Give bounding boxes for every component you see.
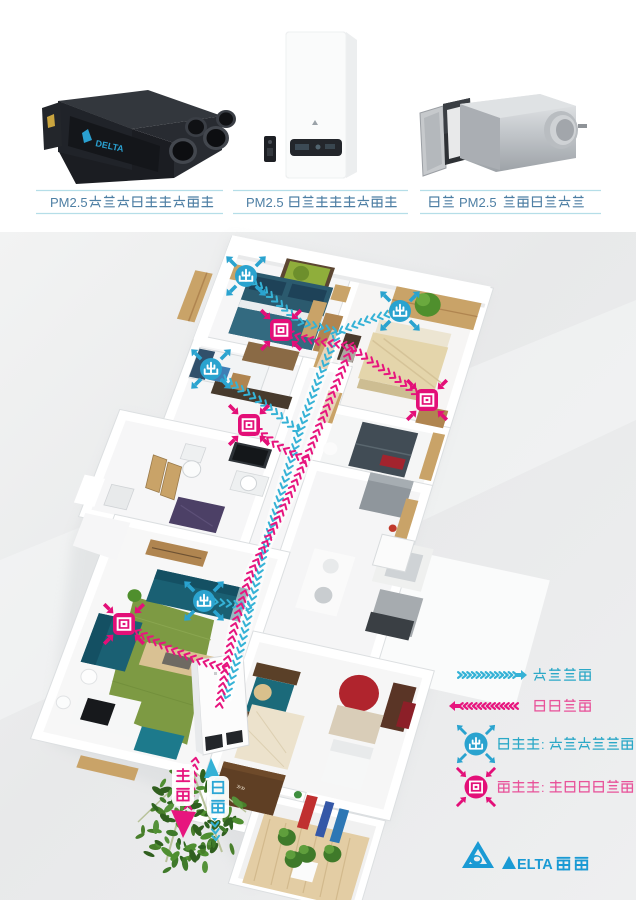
- svg-text::: :: [541, 737, 545, 752]
- svg-text:PM2.5: PM2.5: [50, 195, 88, 210]
- svg-text:PM2.5: PM2.5: [459, 195, 497, 210]
- svg-text:PM2.5: PM2.5: [246, 195, 284, 210]
- svg-text:ELTA: ELTA: [517, 857, 553, 873]
- svg-text::: :: [541, 780, 545, 795]
